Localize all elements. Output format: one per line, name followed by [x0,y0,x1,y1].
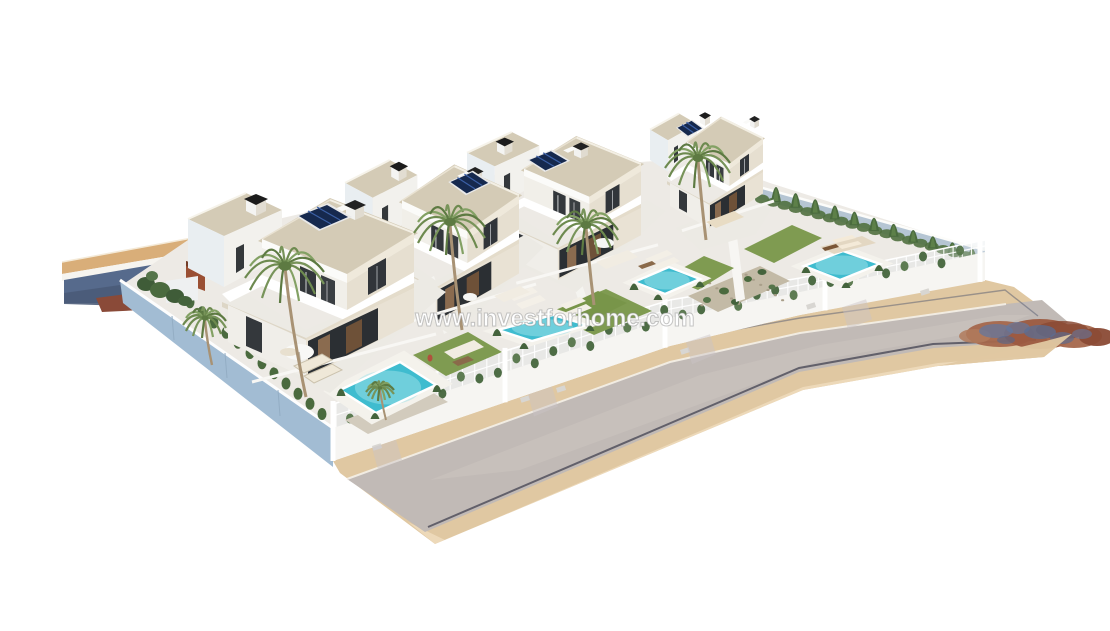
svg-text:www.investforhome.com: www.investforhome.com [414,306,694,332]
